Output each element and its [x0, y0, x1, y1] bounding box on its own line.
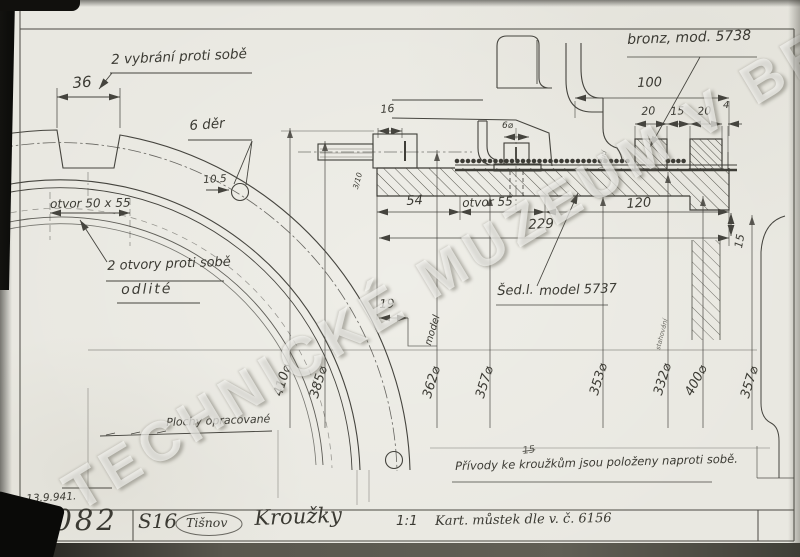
scribble-15: 15: [522, 445, 536, 457]
dim-19: 19: [379, 297, 395, 310]
part-title: Kroužky: [254, 505, 342, 529]
dim-54: 54: [406, 194, 423, 208]
holes-note: 6 děr: [189, 118, 225, 134]
location: Tišnov: [186, 517, 227, 530]
dim-bolt: 6⌀: [502, 122, 513, 131]
dim-4: 4: [723, 101, 729, 111]
dim-100: 100: [637, 76, 662, 90]
right-frame-profile: [757, 216, 794, 478]
grey-iron-model: model 5737: [539, 282, 617, 298]
drawing-linework: [0, 0, 800, 557]
dim-15-step: 15: [733, 233, 746, 249]
dim-otvor-55: otvor 55: [462, 195, 513, 209]
cast-holes-note-line2: odlité: [121, 282, 173, 297]
drawing-number: 6082: [32, 506, 118, 535]
dim-120: 120: [626, 196, 652, 211]
ring-front-view: [0, 130, 410, 505]
dim-20b: 20: [697, 105, 712, 117]
plant-code: S16: [138, 511, 177, 531]
grey-iron-abbrev: Šed.l.: [497, 284, 534, 298]
dim-10-5: 10.5: [203, 174, 227, 186]
housing-outline: [392, 36, 622, 166]
reference-note: Kart. můstek dle v. č. 6156: [435, 512, 612, 528]
dim-229: 229: [528, 218, 554, 233]
dim-36: 36: [72, 75, 92, 91]
machined-note: Plochy opracované: [166, 413, 271, 428]
dim-16: 16: [380, 103, 395, 115]
scale: 1:1: [396, 515, 418, 529]
bronze-note: bronz, mod. 5738: [627, 29, 751, 47]
dim-15gap: 15: [670, 105, 685, 117]
scanned-drawing-sheet: 2 vybrání proti sobě 36 6 děr 10.5 otvor…: [0, 0, 800, 557]
opening-dim: otvor 50 x 55: [50, 197, 131, 210]
dim-20a: 20: [641, 105, 656, 117]
